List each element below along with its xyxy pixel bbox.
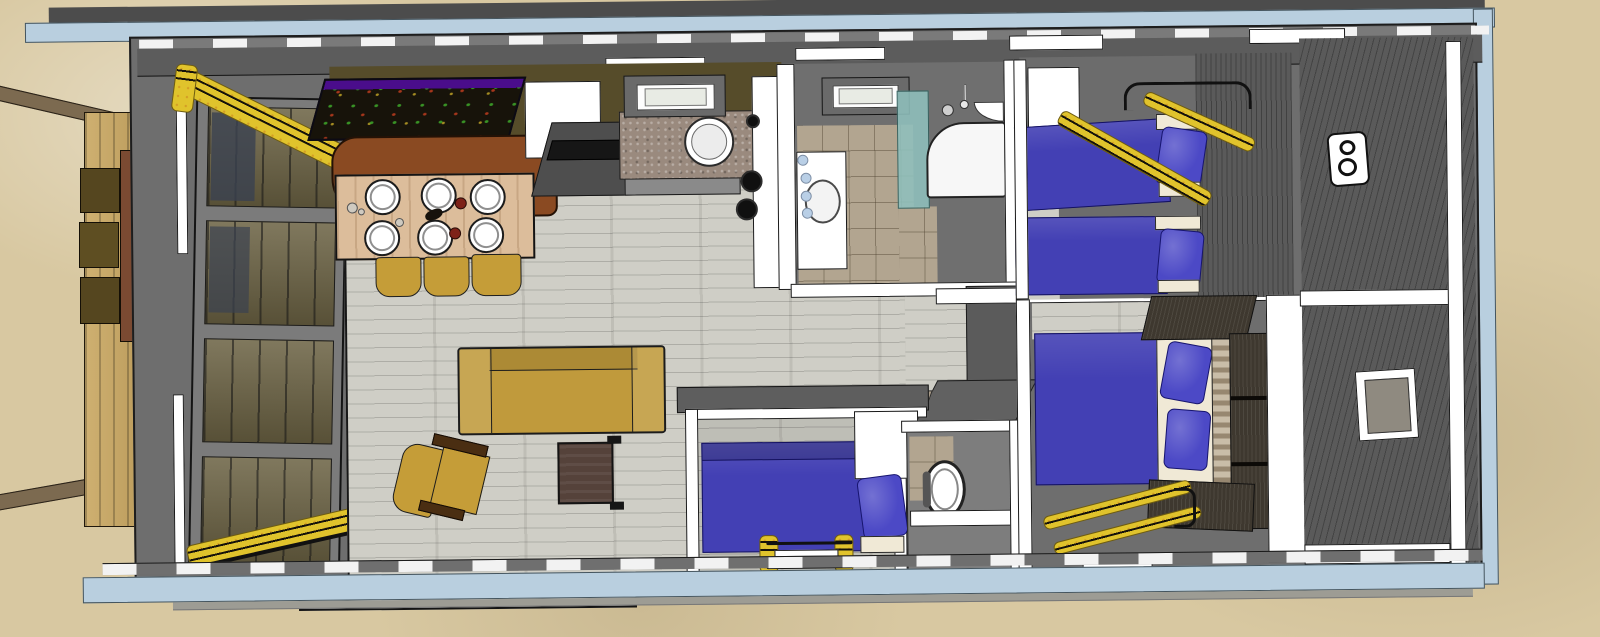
cup-icon [395, 218, 404, 227]
glazed-facade [188, 96, 348, 571]
vanity-light-icon [800, 173, 811, 184]
wall-artwork [307, 77, 526, 141]
wall [685, 409, 700, 579]
sofa-arm [631, 347, 664, 431]
dining-chair [471, 254, 521, 297]
pillow [856, 473, 909, 540]
bathroom-tile-floor [899, 206, 938, 286]
window-pane [202, 338, 334, 444]
ceiling-light-icon [942, 104, 954, 116]
light-lens-icon [1337, 157, 1357, 176]
sofa-back [489, 347, 637, 371]
twin-bed-lower [1015, 216, 1168, 296]
skylight-glass [645, 88, 707, 107]
shower-glass-panel [897, 90, 930, 208]
pillow [1163, 408, 1211, 471]
table-leg [607, 436, 621, 444]
cup-icon [347, 202, 358, 213]
ladder-handrail [1124, 81, 1252, 110]
ladder-rail [1174, 488, 1196, 528]
facade-wall-gap [173, 394, 186, 564]
wall [1013, 59, 1029, 299]
shower-head-icon [960, 100, 969, 109]
sink-basin [691, 124, 727, 160]
cup-icon [358, 208, 365, 215]
coffee-table [557, 442, 614, 505]
oven-front [546, 140, 628, 161]
kitchen-sink [684, 116, 735, 167]
sofa-arm [459, 349, 492, 433]
light-lens-icon [1339, 139, 1356, 155]
cooktop-knob [746, 114, 760, 128]
bed-sheet [1158, 280, 1200, 293]
wall [901, 419, 1023, 432]
facade-wall-gap [176, 102, 189, 254]
sofa [457, 345, 666, 435]
hull-window-glass [1364, 377, 1411, 434]
toilet-tank [923, 471, 931, 507]
shower-tray [926, 122, 1007, 199]
window-reflection [208, 226, 249, 313]
boat [0, 0, 1600, 637]
plate [417, 219, 453, 255]
wc-shelf [910, 510, 1012, 527]
wall [776, 64, 796, 290]
cooktop-burner [740, 170, 762, 192]
plate [364, 220, 400, 256]
wall [1016, 299, 1033, 573]
table-leg [610, 502, 624, 510]
mug-icon [449, 227, 461, 239]
dining-chair [423, 256, 469, 296]
plate [470, 179, 506, 215]
hull-window [1355, 368, 1419, 442]
plate [468, 217, 504, 253]
skylight-roof-tab [795, 47, 885, 61]
vanity-light-icon [801, 191, 812, 202]
plate [365, 179, 401, 215]
wall [1300, 289, 1450, 307]
dining-chair [375, 257, 421, 297]
mug-icon [455, 197, 467, 209]
skylight-roof-tab [1009, 35, 1103, 51]
vanity-light-icon [802, 208, 813, 219]
kitchen-skylight [623, 75, 725, 118]
duvet-fold [702, 442, 866, 461]
houseboat-floorplan-render [0, 0, 1600, 637]
bed-sheet [860, 536, 904, 553]
cooktop-burner [736, 198, 758, 220]
toilet-seat-ring [931, 468, 959, 510]
dining-table [334, 173, 535, 261]
outdoor-light [1326, 131, 1370, 188]
shower-head-icon [964, 84, 967, 101]
double-bed [1034, 332, 1166, 485]
vanity-light-icon [797, 155, 808, 166]
bed-sheet [1155, 216, 1201, 230]
skylight-glass [839, 88, 893, 105]
